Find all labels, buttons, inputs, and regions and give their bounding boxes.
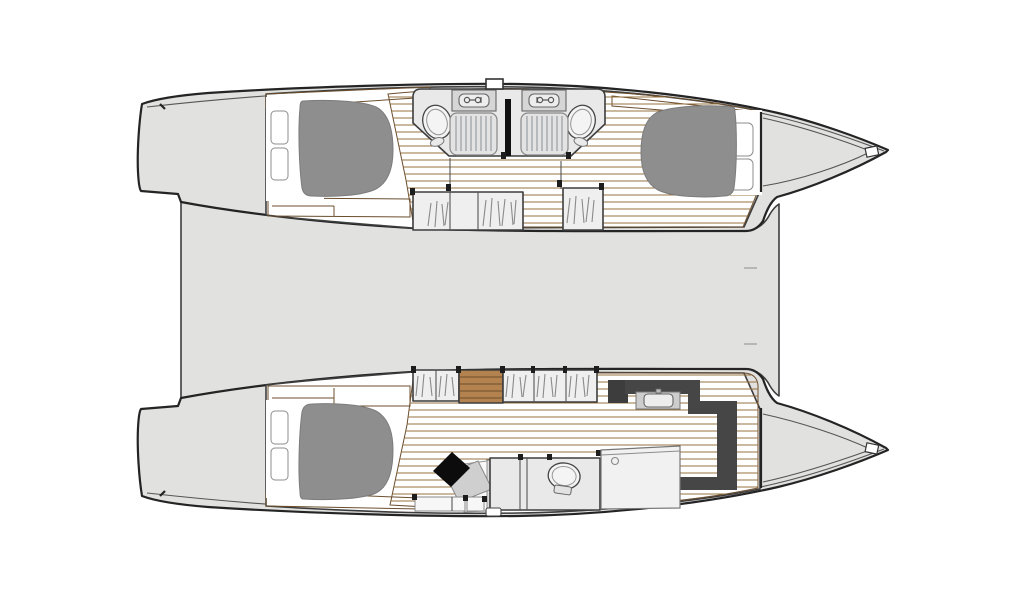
mattress — [299, 100, 393, 196]
head-compartment — [490, 450, 601, 510]
mattress — [641, 106, 736, 197]
catamaran-floor-plan — [0, 0, 1024, 600]
anchor-roller — [865, 443, 879, 454]
cabinet — [415, 497, 465, 511]
anchor-roller — [865, 146, 879, 157]
shower-walls — [601, 446, 680, 509]
shower-grating — [450, 113, 497, 155]
pillow — [271, 148, 288, 180]
aft-double-berth — [266, 97, 393, 201]
shower-grating — [521, 113, 568, 155]
cabinet — [467, 497, 484, 511]
pillow — [271, 448, 288, 480]
wardrobe — [503, 370, 597, 402]
head-walls — [490, 458, 600, 510]
head-compartments — [413, 79, 605, 156]
shower-compartment — [601, 446, 680, 509]
faucet-icon — [656, 389, 661, 393]
deck-hatch — [486, 79, 503, 89]
pillow — [271, 411, 288, 444]
mattress — [299, 404, 393, 500]
wardrobes — [411, 366, 628, 403]
pillow — [271, 111, 288, 144]
aft-double-berth — [266, 400, 393, 500]
boarding-step — [486, 508, 501, 516]
sink-basin — [644, 394, 673, 407]
fwd-double-berth — [641, 106, 762, 197]
dividing-wall — [505, 99, 511, 156]
